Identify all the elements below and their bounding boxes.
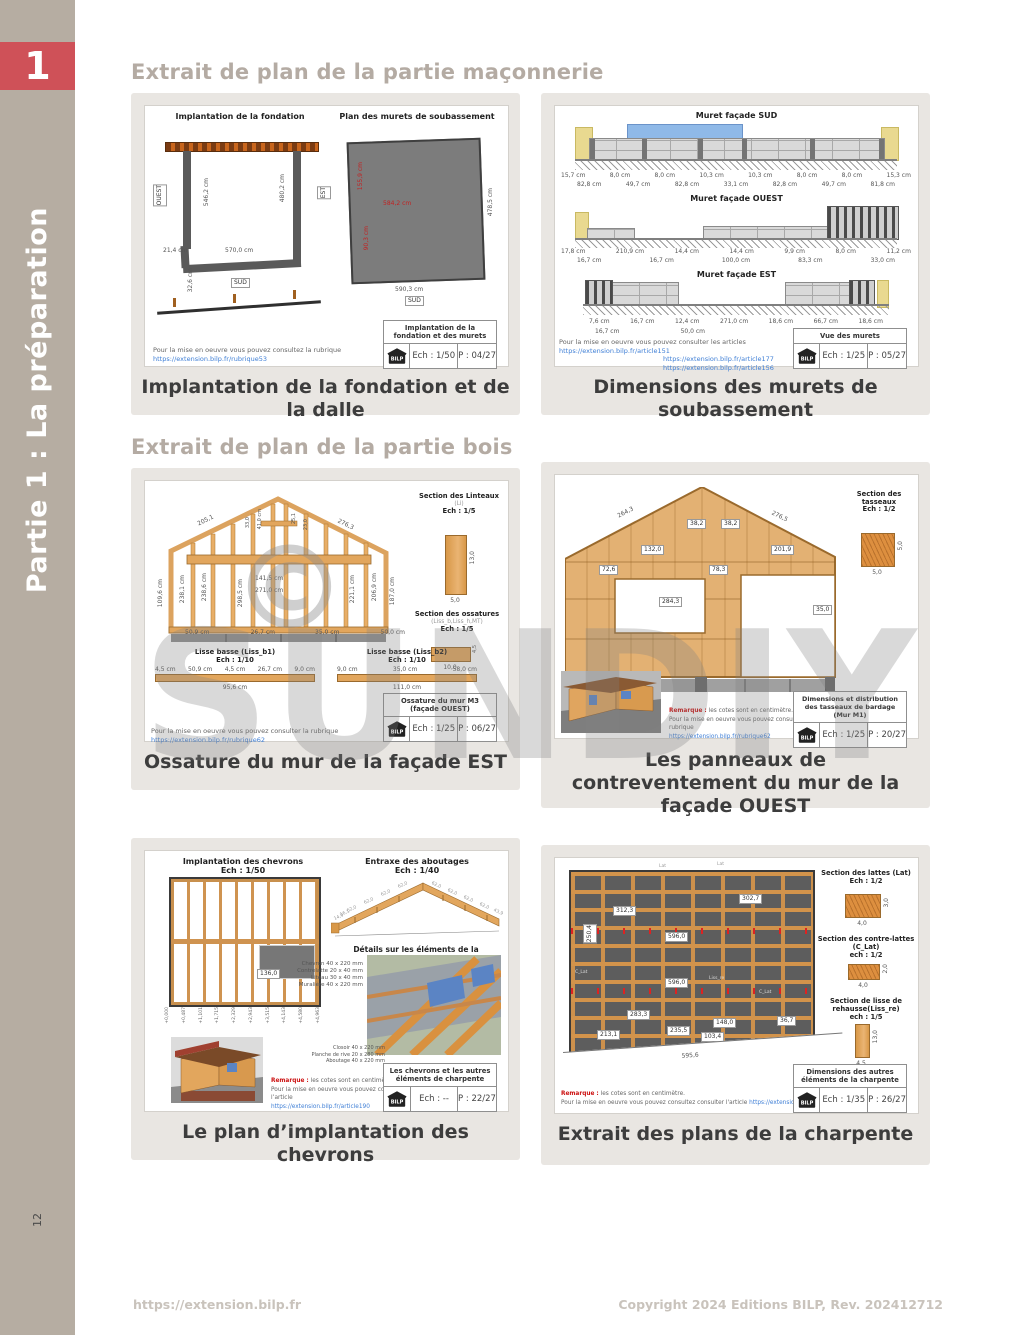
section-scale: ech : 1/2 (817, 952, 915, 960)
bilp-logo-icon: BILP (794, 723, 820, 747)
dim-label: 26,7 cm (251, 629, 275, 636)
dim-label: 35,0 cm (393, 666, 417, 673)
page-ref: P : 22/27 (458, 1087, 496, 1111)
section-ossatures: Section des ossatures (Liss_b,Liss_h,MT)… (407, 611, 507, 633)
dim-tag: 596,0 (665, 932, 688, 942)
scale-value: Ech : 1/25 (820, 723, 868, 747)
ground-beam (157, 300, 321, 314)
dim-label: 8,0 cm (610, 172, 631, 179)
section-scale: Ech : 1/5 (407, 626, 507, 634)
plan-sheet-contreventement: 264,3 276,5 38,2 38,2 132,0 201,9 72,6 7… (554, 474, 919, 739)
remark-label: Remarque : (669, 708, 707, 714)
dim-label: 66,7 cm (814, 318, 838, 325)
tasseau-section-drawing (861, 533, 895, 567)
bilp-logo-icon: BILP (384, 344, 410, 368)
dim-label: +1,715 (215, 1007, 220, 1024)
dim-label: 8,0 cm (835, 248, 856, 255)
page-ref: P : 26/27 (868, 1088, 906, 1112)
muret-sud-drawing (575, 121, 897, 169)
scale-value: Ech : 1/50 (410, 344, 458, 368)
dim-label: Liteau 30 x 40 mm (231, 975, 363, 982)
dim-label: 5,0 (861, 569, 893, 576)
dim-label: 4,5 cm (155, 666, 176, 673)
callout-label: Lat (717, 862, 724, 867)
dim-label: 18,6 cm (769, 318, 793, 325)
part-title-container: Partie 1 : La préparation (0, 130, 75, 670)
section-heading-wood: Extrait de plan de la partie bois (131, 435, 513, 459)
panel-fondation: Implantation de la fondation Plan des mu… (131, 93, 520, 415)
dim-label: 8,0 cm (797, 172, 818, 179)
reference-note: Pour la mise en oeuvre vous pouvez consu… (559, 338, 791, 372)
lisse-rehausse-section-drawing (855, 1024, 870, 1058)
scale-box-title-line: (façade OUEST) (386, 705, 494, 713)
dim-tag: 35,0 (813, 605, 832, 615)
drawing-title-block: Implantation des chevrons Ech : 1/50 (163, 857, 323, 875)
bilp-logo-icon: BILP (797, 348, 817, 365)
panel-ossature: 205,1 276,3 141,5 cm 271,0 cm 109,6 cm 2… (131, 468, 520, 790)
dim-label: 15,7 cm (561, 172, 585, 179)
figure-caption: Extrait des plans de la charpente (541, 1123, 930, 1146)
section-title: Section des Linteaux (413, 493, 505, 501)
dim-tag: 596,0 (665, 978, 688, 988)
dim-label: 50,9 cm (188, 666, 212, 673)
dim-label: 595,6 (681, 1052, 699, 1060)
dim-tag: 312,3 (613, 906, 636, 916)
note-text: Pour la mise en oeuvre vous pouvez consu… (559, 338, 746, 346)
figure-caption: Implantation de la fondation et de la da… (131, 376, 520, 422)
dim-label: 50,9 cm (185, 629, 209, 636)
dim-label: 21,4 cm (163, 247, 187, 254)
dim-label: 26,7 cm (258, 666, 282, 673)
dim-row: 50,9 cm26,7 cm (185, 629, 275, 636)
svg-text:BILP: BILP (800, 1100, 813, 1106)
dim-row: 35,0 cm50,0 cm (315, 629, 405, 636)
dim-label: 82,8 cm (577, 181, 601, 188)
dim-label: 109,6 cm (157, 579, 164, 607)
section-title: Section des tasseaux (843, 491, 915, 506)
direction-tag: SUD (231, 278, 250, 288)
dim-label: 25,1 (291, 513, 298, 524)
dim-label: 16,7 cm (630, 318, 654, 325)
remark-text: les cotes sont en centimètre. (601, 1091, 685, 1097)
plan-sheet-charpente: 312,3 596,0 302,7 250,4 596,0 283,3 148,… (554, 857, 919, 1114)
rubrique-link[interactable]: https://extension.bilp.fr/rubrique62 (669, 734, 771, 740)
dim-row: 9,0 cm35,0 cm58,0 cm (337, 666, 477, 673)
dim-label: 9,0 cm (294, 666, 315, 673)
scale-box: Implantation de la fondation et des mure… (383, 320, 497, 369)
dim-label: 50,0 cm (381, 629, 405, 636)
slab-plan-drawing: 584,2 cm 155,9 cm 90,3 cm 478,5 cm 590,3… (331, 128, 503, 328)
dim-row: 4,5 cm50,9 cm4,5 cm26,7 cm9,0 cm (155, 666, 315, 673)
bilp-logo-icon: BILP (794, 1088, 820, 1112)
detail-items-list: Chevron 40 x 220 mmContrelatte 20 x 40 m… (231, 961, 363, 989)
dim-label: 49,7 cm (626, 181, 650, 188)
drawing-scale: Ech : 1/10 (327, 657, 487, 665)
dim-label: 4,0 (848, 982, 878, 989)
muret-ouest-drawing (575, 204, 897, 248)
remark-label: Remarque : (561, 1091, 599, 1097)
dim-label: 12,4 cm (675, 318, 699, 325)
dim-label: Muralière 40 x 220 mm (231, 982, 363, 989)
scale-value: Ech : 1/35 (820, 1088, 868, 1112)
dim-label: 49,7 cm (822, 181, 846, 188)
dim-label: 81,8 cm (871, 181, 895, 188)
sidebar: 1 Partie 1 : La préparation 12 (0, 0, 75, 1335)
drawing-title-block: Entraxe des aboutages Ech : 1/40 (333, 857, 501, 875)
part-title: Partie 1 : La préparation (22, 207, 53, 593)
scale-box: Vue des murets BILP Ech : 1/25 P : 05/27 (793, 328, 907, 369)
dim-tag: 302,7 (739, 894, 762, 904)
dim-label: 9,9 cm (784, 248, 805, 255)
remark-label: Remarque : (271, 1078, 309, 1084)
section-scale: ech : 1/5 (817, 1014, 915, 1022)
panel-murets: Muret façade SUD 15,7 cm8,0 cm8,0 cm10,3… (541, 93, 930, 415)
direction-tag: OUEST (153, 184, 167, 206)
bilp-logo-icon: BILP (797, 1092, 817, 1109)
dim-label: 3,0 (883, 898, 890, 908)
latte-section-drawing (845, 894, 881, 918)
callout-label: C_Lat (759, 990, 771, 995)
scale-box-title: Implantation de la fondation et des mure… (384, 321, 496, 344)
dim-label: 50,0 cm (681, 328, 705, 335)
drawing-title: Entraxe des aboutages (333, 857, 501, 866)
dim-label: 570,0 cm (225, 247, 253, 254)
dim-row: 15,7 cm8,0 cm8,0 cm10,3 cm10,3 cm8,0 cm8… (561, 172, 911, 179)
article-link[interactable]: https://extension.bilp.fr/article177 (663, 355, 774, 363)
page-ref: P : 05/27 (868, 344, 906, 368)
dim-label: 90,3 cm (363, 226, 370, 250)
lattes-wall-drawing: 312,3 596,0 302,7 250,4 596,0 283,3 148,… (569, 870, 815, 1076)
dim-label: 58,0 cm (453, 666, 477, 673)
dim-label: 23,0 (303, 519, 310, 530)
dim-label: +2,329 (232, 1007, 237, 1024)
dim-tag: 78,3 (709, 565, 728, 575)
drawing-scale: Ech : 1/40 (333, 866, 501, 875)
dim-label: 18,6 cm (859, 318, 883, 325)
dim-label: 35,0 cm (315, 629, 339, 636)
dim-tag: 250,4 (583, 924, 597, 943)
figure-caption: Le plan d’implantation des chevrons (131, 1121, 520, 1167)
dim-label: 590,3 cm (395, 286, 423, 293)
dim-label: 298,5 cm (237, 579, 244, 607)
charpente-3d-detail (367, 955, 501, 1055)
scale-box-title: Dimensions et distribution des tasseaux … (794, 692, 906, 723)
dim-label: 480,2 cm (279, 174, 286, 202)
dim-label: 8,0 cm (655, 172, 676, 179)
dim-label: 10,3 cm (748, 172, 772, 179)
dim-row: 16,7 cm50,0 cm (595, 328, 705, 335)
dim-label: 478,5 cm (487, 188, 494, 216)
dim-tag: 38,2 (721, 519, 740, 529)
dim-label: Contrelatte 20 x 40 mm (231, 968, 363, 975)
note-text: Pour la mise en oeuvre vous pouvez consu… (153, 346, 341, 354)
page-number-container: 12 (0, 1198, 75, 1242)
dim-label: 15,3 cm (887, 172, 911, 179)
dim-label: 33,0 (245, 517, 252, 528)
dim-label: 271,0 cm (720, 318, 748, 325)
dim-tag: 132,0 (641, 545, 664, 555)
dim-label: +4,580 (299, 1007, 304, 1024)
section-scale: Ech : 1/5 (413, 508, 505, 516)
dim-label: 16,7 cm (649, 257, 673, 264)
dim-label: 13,0 (872, 1030, 879, 1043)
bilp-logo-icon: BILP (384, 717, 410, 741)
lintel-section-drawing (445, 535, 467, 595)
drawing-title: Implantation des chevrons (163, 857, 323, 866)
page-ref: P : 20/27 (868, 723, 906, 747)
direction-tag: SUD (405, 296, 424, 306)
dim-label: 206,9 cm (371, 573, 378, 601)
scale-box-title: Dimensions des autres éléments de la cha… (794, 1065, 906, 1088)
bilp-logo-icon: BILP (794, 344, 820, 368)
svg-text:BILP: BILP (390, 729, 403, 735)
dim-tag: 283,3 (627, 1010, 650, 1020)
panel-contreventement: 264,3 276,5 38,2 38,2 132,0 201,9 72,6 7… (541, 462, 930, 808)
section-title: Section de lisse de rehausse(Liss_re) (817, 998, 915, 1013)
dim-label: 5,0 (897, 541, 904, 551)
dim-tag: 38,2 (687, 519, 706, 529)
bilp-logo-icon: BILP (387, 1091, 407, 1108)
dim-label: +2,943 (249, 1007, 254, 1024)
dim-label: 41,0 cm (257, 509, 264, 529)
dim-tag: 201,9 (771, 545, 794, 555)
dim-label: 7,6 cm (589, 318, 610, 325)
dim-label: 83,3 cm (798, 257, 822, 264)
section-linteaux: Section des Linteaux (Li) Ech : 1/5 (413, 493, 505, 515)
house-3d-inset (561, 671, 661, 733)
dim-label: 16,7 cm (595, 328, 619, 335)
dim-label: Aboutage 40 x 220 mm (263, 1058, 385, 1065)
dim-label: 11,2 cm (887, 248, 911, 255)
sections-column: Section des lattes (Lat) Ech : 1/2 3,0 4… (817, 870, 915, 1070)
dim-label: 271,0 cm (255, 587, 283, 594)
drawing-title: Muret façade EST (555, 270, 918, 279)
dim-label: 155,9 cm (357, 162, 364, 190)
figure-caption: Ossature du mur de la façade EST (131, 751, 520, 774)
dim-tag: 213,1 (597, 1030, 620, 1040)
dim-label: 4,5 cm (225, 666, 246, 673)
svg-text:BILP: BILP (391, 1099, 404, 1105)
dim-label: 4,0 (845, 920, 879, 927)
dim-label: +4,143 (282, 1007, 287, 1024)
scale-value: Ech : 1/25 (820, 344, 868, 368)
dim-tag: 284,3 (659, 597, 682, 607)
dim-tag: 36,7 (777, 1016, 796, 1026)
document-page: 1 Partie 1 : La préparation 12 Extrait d… (0, 0, 1024, 1335)
bilp-logo-icon: BILP (387, 721, 407, 738)
dim-label: +3,515 (266, 1007, 271, 1024)
dim-label: 187,0 cm (389, 577, 396, 605)
dim-label: 82,8 cm (773, 181, 797, 188)
muret-est-drawing (583, 280, 889, 316)
page-ref: P : 04/27 (458, 344, 496, 368)
figure-caption: Les panneaux de contreventement du mur d… (541, 749, 930, 818)
page-ref: P : 06/27 (458, 717, 496, 741)
dim-row: 82,8 cm49,7 cm82,8 cm33,1 cm82,8 cm49,7 … (577, 181, 895, 188)
dim-label: 9,0 cm (337, 666, 358, 673)
dim-label: 32,6 cm (187, 268, 194, 292)
scale-value: Ech : 1/25 (410, 717, 458, 741)
foundation-plan-drawing: 546,2 cm 480,2 cm 21,4 cm 570,0 cm 32,6 … (153, 128, 329, 332)
scale-box-title-line: Ossature du mur M3 (386, 697, 494, 705)
section-scale: Ech : 1/2 (817, 878, 915, 886)
part-number-badge: 1 (0, 42, 75, 90)
dim-label: 16,7 cm (577, 257, 601, 264)
dim-label: 33,1 cm (724, 181, 748, 188)
lisse-basse-2: Lisse basse (Liss_b2) Ech : 1/10 9,0 cm3… (327, 649, 487, 691)
note-text: Pour la mise en oeuvre vous pouvez consu… (561, 1100, 747, 1106)
svg-text:BILP: BILP (800, 356, 813, 362)
footer-copyright: Copyright 2024 Editions BILP, Rev. 20241… (553, 1297, 943, 1312)
dim-label: 210,9 cm (616, 248, 644, 255)
dim-label: 10,3 cm (699, 172, 723, 179)
dim-label: 141,5 cm (255, 575, 283, 582)
dim-label: Chevron 40 x 220 mm (231, 961, 363, 968)
dim-label: +0,487 (182, 1007, 187, 1024)
svg-text:BILP: BILP (800, 735, 813, 741)
plan-sheet-murets: Muret façade SUD 15,7 cm8,0 cm8,0 cm10,3… (554, 105, 919, 367)
dim-label: 8,0 cm (842, 172, 863, 179)
drawing-scale: Ech : 1/50 (163, 866, 323, 875)
section-tasseaux: Section des tasseaux Ech : 1/2 (843, 491, 915, 514)
scale-box: Dimensions et distribution des tasseaux … (793, 691, 907, 748)
scale-box: Les chevrons et les autres éléments de c… (383, 1063, 497, 1112)
dim-tag: 235,5 (667, 1026, 690, 1036)
plan-sheet-ossature: 205,1 276,3 141,5 cm 271,0 cm 109,6 cm 2… (144, 480, 509, 742)
article-link[interactable]: https://extension.bilp.fr/article156 (663, 364, 774, 372)
scale-value: Ech : -- (411, 1087, 458, 1111)
dim-label: 238,1 cm (179, 575, 186, 603)
drawing-title: Implantation de la fondation (155, 112, 325, 121)
bilp-logo-icon: BILP (384, 1087, 411, 1111)
dim-label: 82,8 cm (675, 181, 699, 188)
house-3d-inset (171, 1037, 263, 1103)
drawing-scale: Ech : 1/10 (149, 657, 321, 665)
dim-label: 584,2 cm (383, 200, 411, 207)
dim-label: 238,6 cm (201, 573, 208, 601)
detail-items-list-2: Closoir 40 x 220 mmPlanche de rive 20 x … (263, 1045, 385, 1065)
drawing-title: Muret façade OUEST (555, 194, 918, 203)
section-scale: Ech : 1/2 (843, 506, 915, 514)
callout-label: C_Lat (575, 970, 587, 975)
dim-label: 17,8 cm (561, 248, 585, 255)
dim-label: 221,1 cm (349, 575, 356, 603)
dim-label: 14,4 cm (675, 248, 699, 255)
dim-label: 546,2 cm (203, 178, 210, 206)
dim-tag: 72,6 (599, 565, 618, 575)
dim-label: 95,6 cm (149, 684, 321, 691)
dim-row: 17,8 cm210,9 cm14,4 cm14,4 cm9,9 cm8,0 c… (561, 248, 911, 255)
lisse-basse-1: Lisse basse (Liss_b1) Ech : 1/10 4,5 cm5… (149, 649, 321, 691)
plan-sheet-fondation: Implantation de la fondation Plan des mu… (144, 105, 509, 367)
part-number: 1 (24, 47, 50, 85)
dim-label: +0,000 (165, 1007, 170, 1024)
callout-label: Lat (659, 864, 666, 869)
section-title: Section des ossatures (407, 611, 507, 619)
scale-box: Ossature du mur M3 (façade OUEST) BILP E… (383, 693, 497, 742)
section-heading-masonry: Extrait de plan de la partie maçonnerie (131, 60, 604, 84)
page-number: 12 (31, 1213, 44, 1227)
drawing-title: Plan des murets de soubassement (331, 112, 503, 121)
contre-latte-section-drawing (848, 964, 880, 980)
rubrique-link[interactable]: https://extension.bilp.fr/rubrique62 (151, 736, 265, 744)
bilp-logo-icon: BILP (387, 348, 407, 365)
panel-charpente: 312,3 596,0 302,7 250,4 596,0 283,3 148,… (541, 845, 930, 1165)
levels-row: +0,000+0,487+1,101+1,715+2,329+2,943+3,5… (165, 1007, 321, 1024)
article-link[interactable]: https://extension.bilp.fr/article151 (559, 347, 670, 355)
dim-label: 14,4 cm (729, 248, 753, 255)
scale-box: Dimensions des autres éléments de la cha… (793, 1064, 907, 1113)
note-text: Pour la mise en oeuvre vous pouvez consu… (151, 727, 338, 735)
dim-row: 7,6 cm16,7 cm12,4 cm271,0 cm18,6 cm66,7 … (589, 318, 883, 325)
figure-caption: Dimensions des murets de soubassement (541, 376, 930, 422)
dim-label: 13,0 (469, 551, 476, 564)
drawing-title: Muret façade SUD (555, 111, 918, 120)
dim-label: 5,0 (445, 597, 465, 604)
callout-label: Liss_re (709, 976, 724, 981)
dim-label: +1,101 (199, 1007, 204, 1024)
dim-label: 2,0 (882, 964, 889, 974)
dim-label: 111,0 cm (327, 684, 487, 691)
panel-chevrons: Implantation des chevrons Ech : 1/50 136… (131, 838, 520, 1160)
bilp-logo-icon: BILP (797, 727, 817, 744)
dim-label: 33,0 cm (871, 257, 895, 264)
scale-box-title: Ossature du mur M3 (façade OUEST) (384, 694, 496, 717)
rubrique-link[interactable]: https://extension.bilp.fr/rubrique53 (153, 355, 267, 363)
dim-label: 100,0 cm (722, 257, 750, 264)
footer-url[interactable]: https://extension.bilp.fr (133, 1297, 301, 1312)
dim-tag: 148,0 (713, 1018, 736, 1028)
remark-text: les cotes sont en centimètre. (709, 708, 793, 714)
section-title: Section des contre-lattes (C_Lat) (817, 936, 915, 951)
direction-tag: EST (317, 186, 331, 199)
svg-text:BILP: BILP (390, 356, 403, 362)
scale-box-title: Vue des murets (794, 329, 906, 344)
article-link[interactable]: https://extension.bilp.fr/article190 (271, 1104, 370, 1110)
dim-row: 16,7 cm16,7 cm100,0 cm83,3 cm33,0 cm (577, 257, 895, 264)
scale-box-title: Les chevrons et les autres éléments de c… (384, 1064, 496, 1087)
dim-label: +4,963 (316, 1007, 321, 1024)
gable-framing-drawing (151, 491, 409, 643)
plan-sheet-chevrons: Implantation des chevrons Ech : 1/50 136… (144, 850, 509, 1112)
